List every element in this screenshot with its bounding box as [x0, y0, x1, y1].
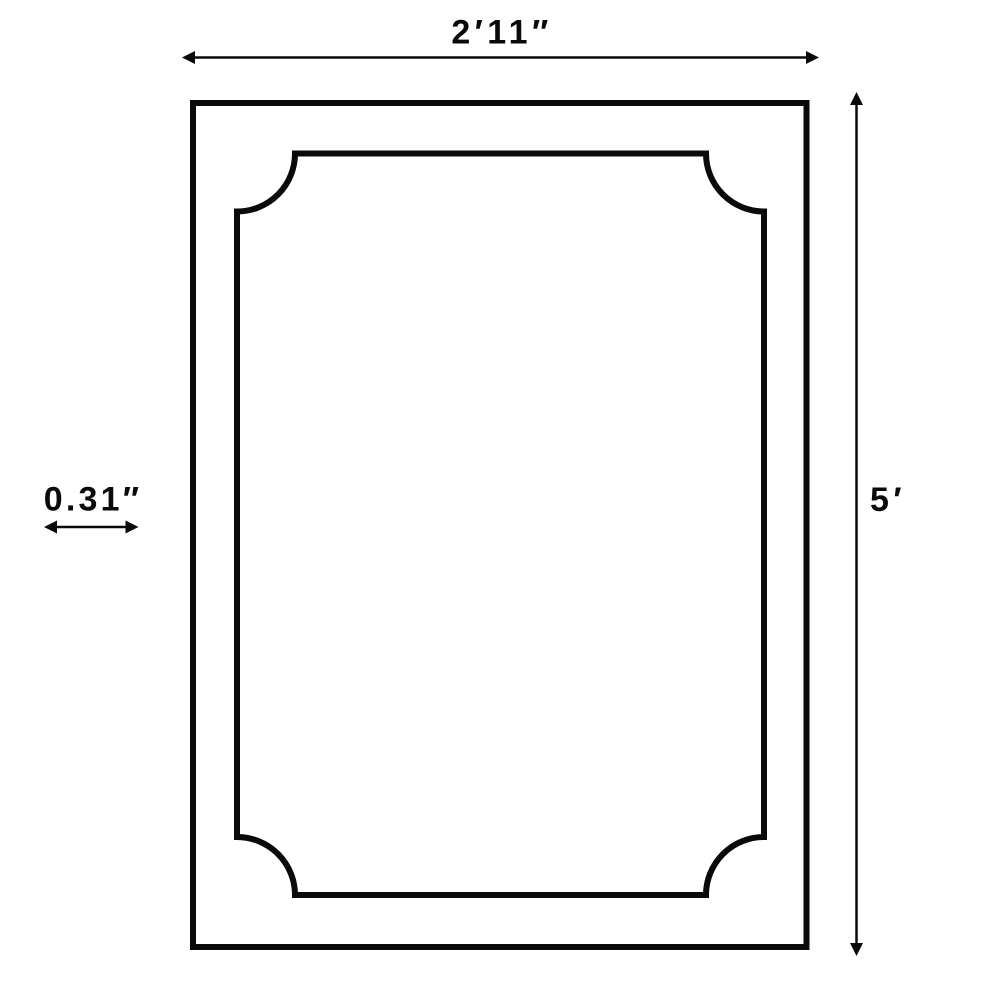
- svg-text:2′11″: 2′11″: [451, 14, 552, 52]
- svg-text:5′: 5′: [870, 481, 906, 519]
- svg-text:0.31″: 0.31″: [44, 481, 142, 519]
